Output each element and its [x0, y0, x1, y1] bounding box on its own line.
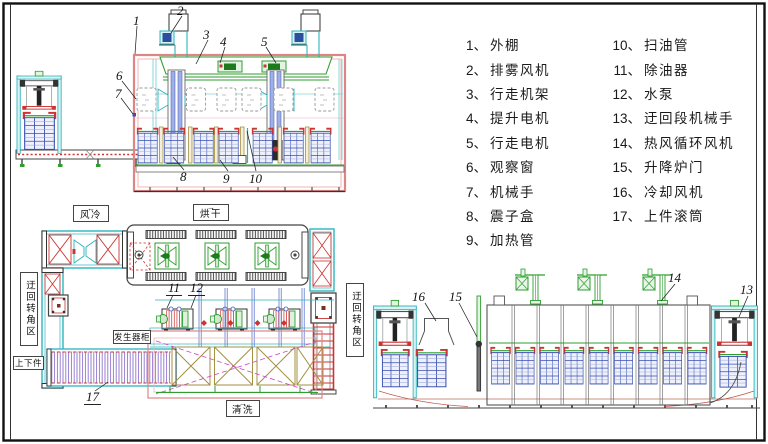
label-drying: → 烘干 [193, 204, 229, 221]
legend-item: 3、行走机架 [453, 81, 595, 105]
legend-label: 水泵 [644, 83, 674, 103]
legend-item: 6、观察窗 [453, 154, 595, 178]
legend-num: 1、 [453, 34, 487, 54]
callout-11: 11 [166, 281, 182, 296]
callout-9: 9 [223, 172, 230, 185]
legend-item: 15、升降炉门 [595, 154, 734, 178]
legend-column-1: 1、外棚 2、排雾风机 3、行走机架 4、提升电机 5、行走电机 6、观察窗 7… [453, 32, 595, 252]
callout-3: 3 [203, 28, 210, 41]
legend-num: 17、 [595, 205, 641, 225]
legend-item: 4、提升电机 [453, 105, 595, 129]
legend-item: 2、排雾风机 [453, 56, 595, 80]
legend: 1、外棚 2、排雾风机 3、行走机架 4、提升电机 5、行走电机 6、观察窗 7… [453, 32, 734, 252]
legend-label: 加热管 [490, 229, 535, 249]
legend-label: 除油器 [644, 59, 689, 79]
legend-item: 1、外棚 [453, 32, 595, 56]
drying-chamber [127, 225, 308, 285]
side-view-furnace-line [373, 269, 760, 408]
legend-label: 提升电机 [490, 107, 550, 127]
legend-item: 8、震子盒 [453, 203, 595, 227]
legend-label: 排雾风机 [490, 59, 550, 79]
legend-label: 扫油管 [644, 34, 689, 54]
furnace-door [476, 296, 482, 391]
legend-item: 17、上件滚筒 [595, 203, 734, 227]
legend-item: 16、冷却风机 [595, 178, 734, 202]
label-air-cooling: ← 风冷 [73, 205, 109, 222]
legend-label: 观察窗 [490, 156, 535, 176]
legend-label: 冷却风机 [644, 181, 704, 201]
label-cleaning: → 清洗 [226, 400, 260, 417]
legend-num: 15、 [595, 156, 641, 176]
label-generator-cabinet: 发生器柜 [113, 330, 151, 344]
legend-num: 13、 [595, 107, 641, 127]
callout-4: 4 [220, 35, 227, 48]
legend-num: 9、 [453, 229, 487, 249]
loading-roller-conveyor [47, 349, 176, 386]
legend-num: 10、 [595, 34, 641, 54]
legend-num: 2、 [453, 59, 487, 79]
legend-label: 行走电机 [490, 132, 550, 152]
side-view-main-line [16, 10, 345, 192]
label-drying-text: 烘干 [200, 210, 222, 220]
legend-label: 迂回段机械手 [644, 107, 734, 127]
legend-item: 14、热风循环风机 [595, 130, 734, 154]
label-cleaning-text: 清洗 [232, 406, 254, 416]
legend-item: 13、迂回段机械手 [595, 105, 734, 129]
corner-transfer-right [311, 293, 336, 323]
legend-item: 12、水泵 [595, 81, 734, 105]
callout-2: 2 [177, 4, 184, 17]
label-detour-corner-left: 迂回转角区 [20, 272, 38, 346]
legend-column-2: 10、扫油管 11、除油器 12、水泵 13、迂回段机械手 14、热风循环风机 … [595, 32, 734, 252]
legend-label: 热风循环风机 [644, 132, 734, 152]
legend-item: 5、行走电机 [453, 130, 595, 154]
label-detour-corner-right: 迂回转角区 [346, 283, 364, 357]
callout-16: 16 [412, 290, 425, 303]
lift-motor [218, 61, 242, 72]
legend-num: 4、 [453, 107, 487, 127]
legend-label: 行走机架 [490, 83, 550, 103]
label-air-cooling-text: 风冷 [80, 211, 102, 221]
callout-14: 14 [668, 271, 681, 284]
legend-num: 5、 [453, 132, 487, 152]
callout-17: 17 [84, 390, 101, 405]
callout-5: 5 [261, 35, 268, 48]
callout-7: 7 [115, 87, 122, 100]
legend-label: 上件滚筒 [644, 205, 704, 225]
observation-windows [137, 88, 334, 111]
cad-screenshot: 1、外棚 2、排雾风机 3、行走机架 4、提升电机 5、行走电机 6、观察窗 7… [0, 0, 768, 444]
legend-label: 外棚 [490, 34, 520, 54]
legend-item: 9、加热管 [453, 227, 595, 251]
cooling-fan-hood [419, 319, 454, 346]
legend-num: 6、 [453, 156, 487, 176]
legend-num: 12、 [595, 83, 641, 103]
label-loading-station: 上下件 [13, 356, 44, 370]
legend-label: 机械手 [490, 181, 535, 201]
plan-view [42, 225, 336, 398]
callout-10: 10 [249, 172, 262, 185]
legend-item: 10、扫油管 [595, 32, 734, 56]
legend-label: 震子盒 [490, 205, 535, 225]
corner-transfer-left [49, 295, 69, 316]
legend-num: 8、 [453, 205, 487, 225]
callout-8: 8 [180, 170, 187, 183]
callout-13: 13 [740, 283, 753, 296]
callout-12: 12 [188, 281, 205, 296]
legend-num: 3、 [453, 83, 487, 103]
callout-1: 1 [133, 14, 140, 27]
callout-6: 6 [116, 69, 123, 82]
legend-num: 16、 [595, 181, 641, 201]
legend-num: 11、 [595, 59, 641, 79]
legend-label: 升降炉门 [644, 156, 704, 176]
legend-num: 14、 [595, 132, 641, 152]
legend-item: 7、机械手 [453, 178, 595, 202]
legend-num: 7、 [453, 181, 487, 201]
callout-15: 15 [449, 290, 462, 303]
legend-item: 11、除油器 [595, 56, 734, 80]
